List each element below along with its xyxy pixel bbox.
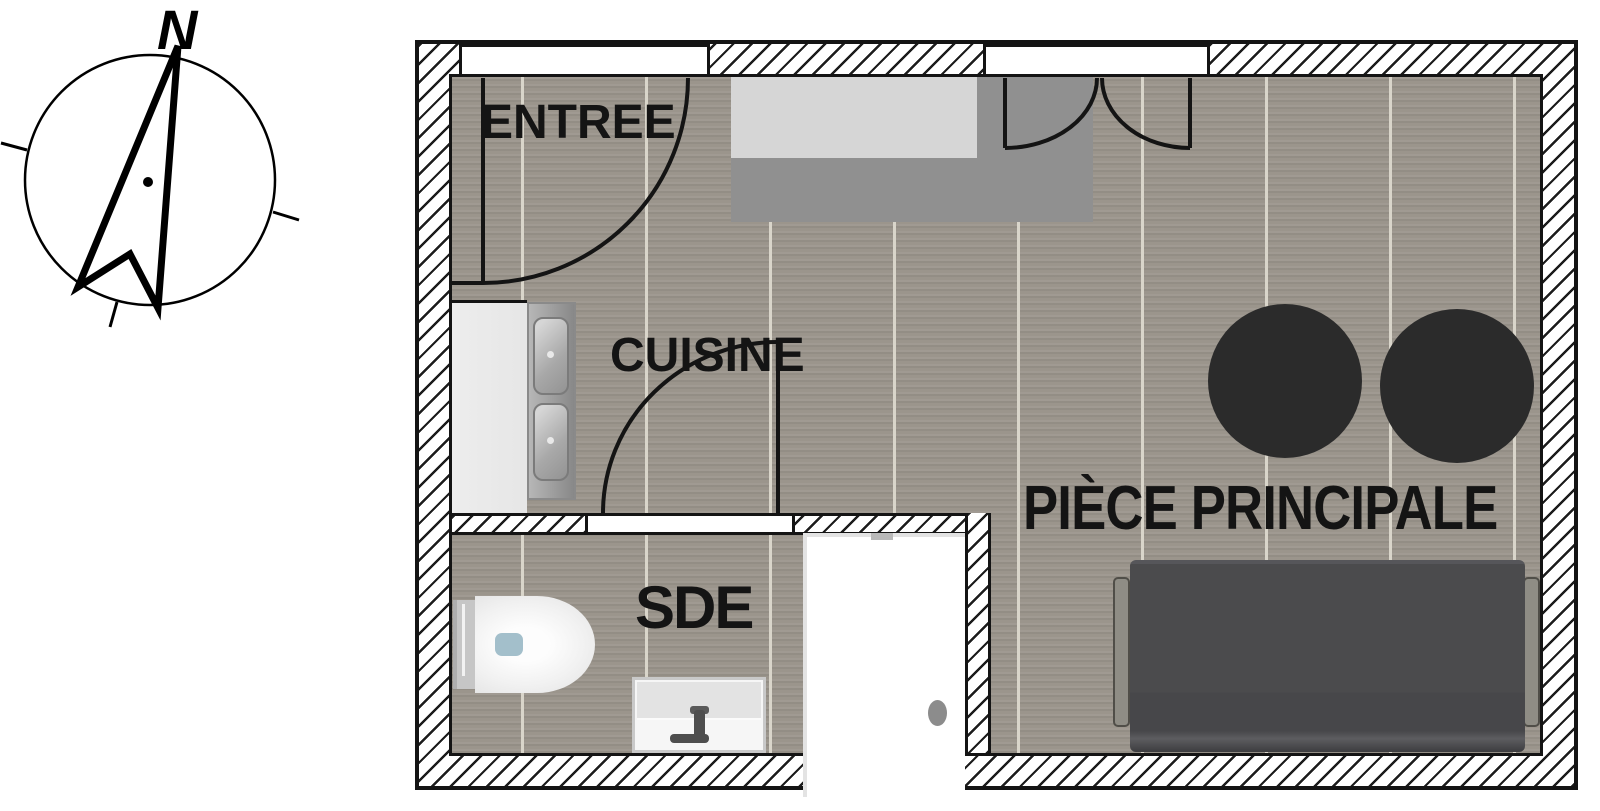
- compass-north-label: N: [157, 0, 199, 61]
- double-door-left-arc: [1005, 78, 1097, 148]
- floorplan: ENTREE CUISINE SDE PIÈCE PRINCIPALE: [415, 40, 1578, 790]
- compass-tick-south: [110, 302, 117, 327]
- room-label-piece-principale: PIÈCE PRINCIPALE: [1023, 478, 1497, 540]
- north-needle-icon: [78, 46, 178, 308]
- compass-center-dot: [143, 177, 153, 187]
- door-swings: [419, 44, 1574, 786]
- compass-tick-west: [1, 143, 27, 150]
- double-door-right-arc: [1102, 78, 1190, 148]
- room-label-sde: SDE: [635, 578, 752, 638]
- room-label-cuisine: CUISINE: [610, 332, 805, 380]
- compass-tick-east: [273, 212, 299, 220]
- room-label-entree: ENTREE: [481, 99, 676, 147]
- compass-rose: N: [0, 0, 310, 340]
